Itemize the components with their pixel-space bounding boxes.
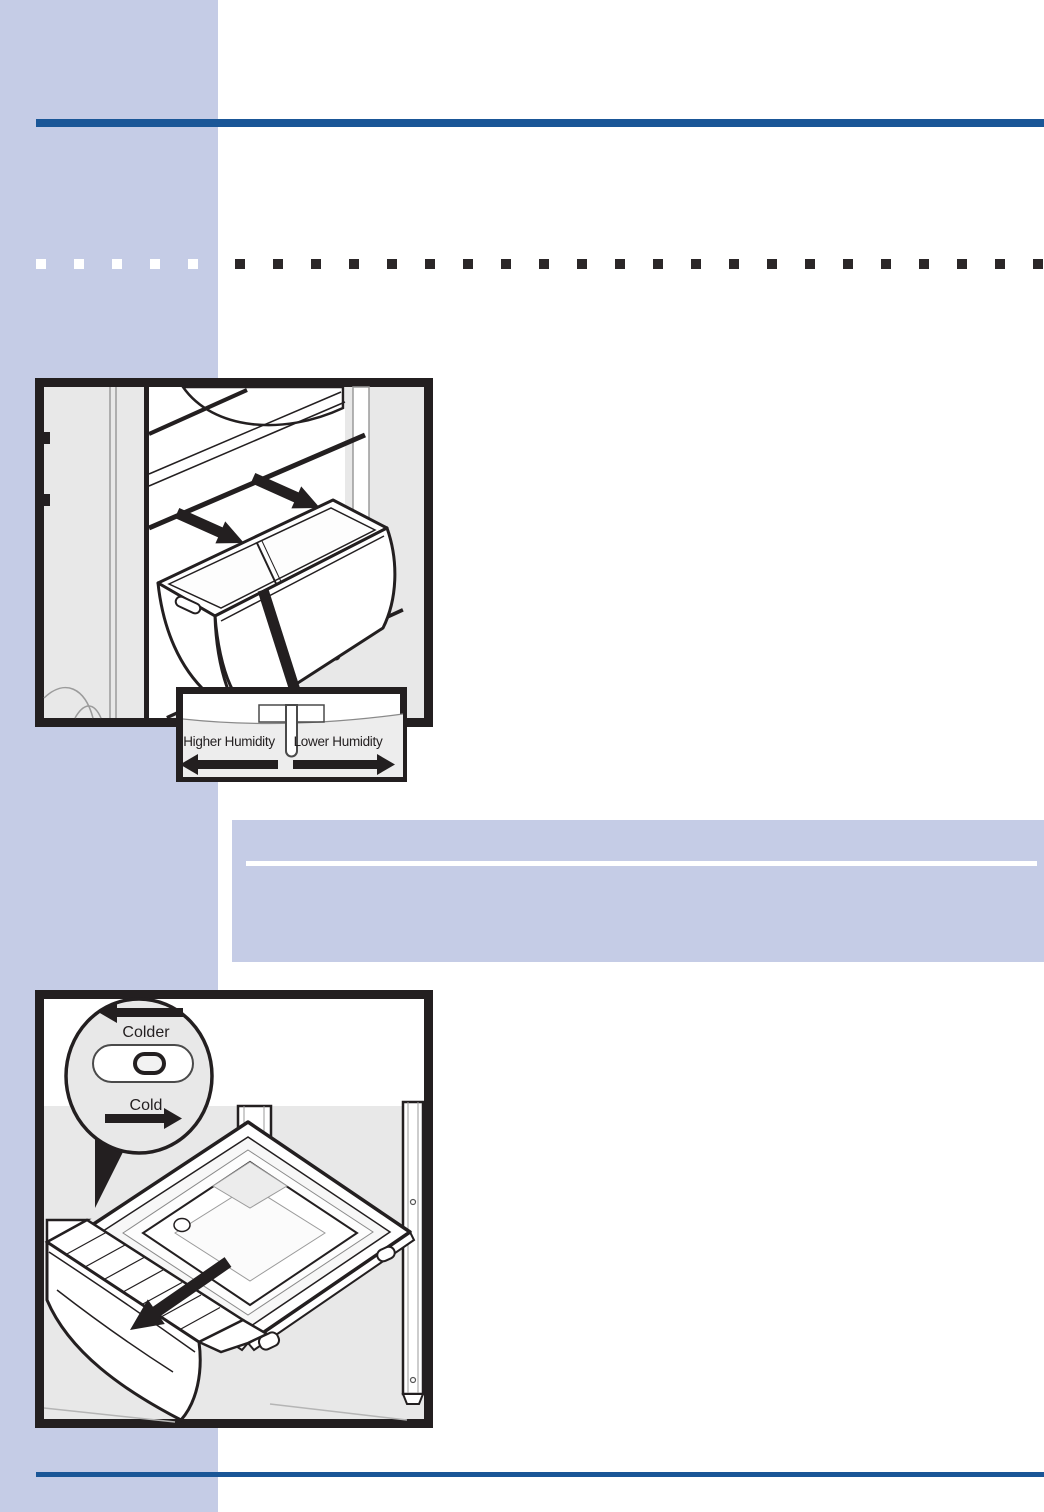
colder-label: Colder [122, 1024, 170, 1041]
lower-humidity-label: Lower Humidity [294, 734, 383, 749]
divider-square [843, 259, 853, 269]
divider-square [112, 259, 122, 269]
divider-square [691, 259, 701, 269]
cold-label: Cold [130, 1097, 163, 1114]
divider-square [957, 259, 967, 269]
bottom-horizontal-rule [36, 1472, 1044, 1477]
crisper-drawer-figure: Higher Humidity Lower Humidity [35, 378, 433, 785]
divider-square [995, 259, 1005, 269]
divider-square [311, 259, 321, 269]
door-frame-rail [403, 1102, 423, 1404]
temp-control-callout: Colder Cold [66, 999, 212, 1153]
divider-square [881, 259, 891, 269]
top-horizontal-rule [36, 119, 1044, 127]
divider-square [188, 259, 198, 269]
dotted-divider-row [0, 259, 1044, 269]
divider-square [729, 259, 739, 269]
divider-square [273, 259, 283, 269]
divider-square [463, 259, 473, 269]
divider-square [615, 259, 625, 269]
divider-square [919, 259, 929, 269]
divider-square [235, 259, 245, 269]
divider-square [577, 259, 587, 269]
divider-square [387, 259, 397, 269]
note-panel [232, 820, 1044, 962]
note-panel-rule [246, 861, 1037, 866]
divider-square [150, 259, 160, 269]
humidity-control-callout: Higher Humidity Lower Humidity [180, 691, 404, 779]
divider-square [767, 259, 777, 269]
divider-square [349, 259, 359, 269]
temp-slider-knob [135, 1054, 164, 1073]
divider-square [36, 259, 46, 269]
divider-square [653, 259, 663, 269]
divider-square [74, 259, 84, 269]
fridge-door-panel [44, 387, 144, 718]
divider-square [1033, 259, 1043, 269]
divider-square [425, 259, 435, 269]
divider-square [805, 259, 815, 269]
divider-square [501, 259, 511, 269]
divider-square [539, 259, 549, 269]
manual-page: Higher Humidity Lower Humidity [0, 0, 1044, 1512]
meat-drawer-figure: Colder Cold [35, 990, 433, 1428]
higher-humidity-label: Higher Humidity [183, 734, 275, 749]
